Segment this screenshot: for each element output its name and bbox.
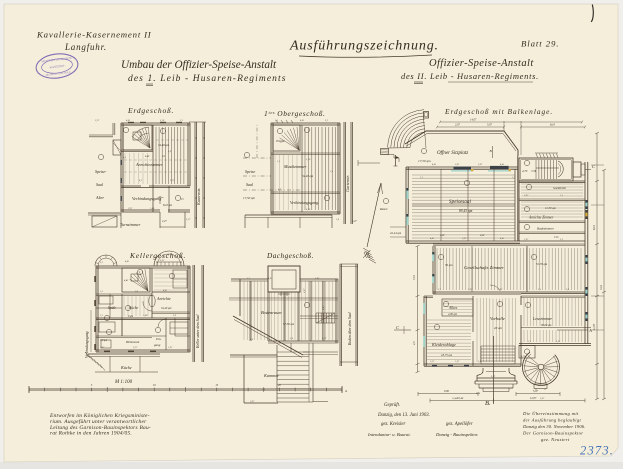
svg-text:31,0: 31,0 bbox=[600, 285, 603, 290]
svg-text:4,41: 4,41 bbox=[430, 237, 434, 240]
svg-text:Kasernstr.: Kasernstr. bbox=[196, 188, 201, 206]
svg-text:10,44: 10,44 bbox=[457, 397, 464, 400]
svg-text:7,10: 7,10 bbox=[413, 275, 416, 280]
svg-text:5,97: 5,97 bbox=[487, 124, 492, 127]
svg-text:Entworfen im Königlichen Krieg: Entworfen im Königlichen Kriegsministe- bbox=[49, 412, 150, 419]
svg-text:2,1: 2,1 bbox=[275, 119, 278, 122]
svg-text:Kavallerie-Kasernement II: Kavallerie-Kasernement II bbox=[36, 30, 152, 40]
svg-text:rium. Ausgeführt unter verant: rium. Ausgeführt unter verantwortlicher bbox=[50, 418, 147, 425]
svg-text:Danzig - Bauinspektor.: Danzig - Bauinspektor. bbox=[435, 432, 478, 437]
svg-text:4,41: 4,41 bbox=[125, 260, 129, 263]
svg-text:Kleiderablage: Kleiderablage bbox=[431, 342, 456, 347]
svg-text:Speise-: Speise- bbox=[95, 169, 107, 174]
svg-text:2,1: 2,1 bbox=[538, 288, 541, 291]
svg-text:Verbindungsgang: Verbindungsgang bbox=[132, 196, 161, 201]
svg-text:A: A bbox=[588, 328, 592, 333]
svg-text:8,10: 8,10 bbox=[550, 124, 555, 127]
svg-text:Bodenraum: Bodenraum bbox=[261, 310, 282, 315]
svg-text:Anrichtezimmer: Anrichtezimmer bbox=[135, 162, 163, 167]
svg-text:gang: gang bbox=[154, 343, 161, 347]
svg-text:Gartenstr.: Gartenstr. bbox=[345, 175, 350, 192]
svg-text:Anrichte: Anrichte bbox=[156, 296, 171, 301]
svg-text:Blatt 29.: Blatt 29. bbox=[521, 39, 559, 49]
svg-text:34,40 qm: 34,40 qm bbox=[161, 307, 171, 310]
svg-text:2,97: 2,97 bbox=[455, 124, 460, 127]
svg-text:Boden über dem Saal: Boden über dem Saal bbox=[348, 312, 352, 345]
svg-text:gez. Neustert: gez. Neustert bbox=[541, 437, 570, 442]
svg-text:Küche: Küche bbox=[128, 306, 139, 310]
svg-text:Speisesaal: Speisesaal bbox=[449, 199, 471, 205]
svg-text:Offizier-Speise-Anstalt: Offizier-Speise-Anstalt bbox=[429, 58, 534, 69]
svg-text:2,27: 2,27 bbox=[303, 288, 306, 293]
svg-text:4,41: 4,41 bbox=[500, 237, 504, 240]
svg-text:1ᵗᵉˢ Obergeschoß.: 1ᵗᵉˢ Obergeschoß. bbox=[264, 109, 325, 118]
svg-text:4,41: 4,41 bbox=[163, 289, 167, 292]
svg-text:8,10: 8,10 bbox=[593, 225, 596, 230]
svg-text:12,07: 12,07 bbox=[530, 397, 537, 400]
svg-text:der Ausführung beglaubigt: der Ausführung beglaubigt bbox=[523, 418, 582, 423]
svg-text:Gesellschafts Zimmer: Gesellschafts Zimmer bbox=[464, 265, 504, 270]
svg-text:4,41: 4,41 bbox=[126, 119, 130, 122]
svg-text:4,41: 4,41 bbox=[432, 163, 436, 166]
svg-text:2,1: 2,1 bbox=[528, 340, 531, 343]
svg-text:Danzig, den 13. Juni 1903.: Danzig, den 13. Juni 1903. bbox=[377, 413, 430, 418]
svg-text:2,1: 2,1 bbox=[180, 119, 183, 122]
svg-text:Turnzimmer: Turnzimmer bbox=[120, 222, 141, 227]
svg-text:4,41: 4,41 bbox=[440, 234, 445, 237]
svg-text:Geprüft.: Geprüft. bbox=[384, 403, 400, 408]
svg-text:Badezimmer: Badezimmer bbox=[537, 227, 555, 231]
svg-text:Verbindungsgang.: Verbindungsgang. bbox=[290, 200, 319, 205]
svg-text:9,00: 9,00 bbox=[444, 390, 449, 393]
svg-text:4,41: 4,41 bbox=[268, 277, 272, 280]
svg-text:Dachgeschoß.: Dachgeschoß. bbox=[266, 252, 314, 260]
svg-text:20 qm: 20 qm bbox=[494, 326, 503, 330]
svg-text:14,07: 14,07 bbox=[470, 119, 477, 122]
svg-text:8,10 qm: 8,10 qm bbox=[163, 204, 172, 207]
svg-text:Danzig den 30. November 1906.: Danzig den 30. November 1906. bbox=[522, 424, 585, 429]
svg-text:4,5: 4,5 bbox=[413, 341, 416, 345]
svg-text:des 1. Leib - Husaren-Regimen: des 1. Leib - Husaren-Regiments bbox=[128, 74, 287, 84]
svg-text:M 1:100: M 1:100 bbox=[114, 380, 133, 385]
svg-text:2,27: 2,27 bbox=[322, 305, 325, 310]
svg-text:Die Übereinstimmung mit: Die Übereinstimmung mit bbox=[522, 411, 579, 416]
svg-text:Erdgeschoß.: Erdgeschoß. bbox=[127, 106, 174, 115]
svg-text:Küche: Küche bbox=[120, 365, 132, 370]
svg-text:5,97: 5,97 bbox=[533, 390, 538, 393]
svg-text:gez. Apellöfer: gez. Apellöfer bbox=[446, 422, 473, 427]
svg-text:9 qm: 9 qm bbox=[128, 315, 133, 318]
svg-text:Heizraum: Heizraum bbox=[125, 340, 140, 344]
svg-text:rat Rothke in den Jahren 1904/: rat Rothke in den Jahren 1904/05. bbox=[50, 431, 132, 437]
svg-text:Speise: Speise bbox=[245, 169, 255, 174]
svg-text:C.O.: C.O. bbox=[554, 236, 559, 239]
svg-text:B.: B. bbox=[485, 400, 491, 407]
svg-text:Verbindungsgang: Verbindungsgang bbox=[85, 331, 89, 358]
svg-text:Der Garnison-Bauinspektor: Der Garnison-Bauinspektor bbox=[522, 431, 583, 436]
svg-text:39 qm: 39 qm bbox=[445, 263, 453, 267]
svg-text:Erdgeschoß mit Balkenlage.: Erdgeschoß mit Balkenlage. bbox=[444, 107, 553, 116]
svg-text:Garderobe: Garderobe bbox=[553, 186, 567, 190]
svg-text:Umbau der Offizier-Speise-Anst: Umbau der Offizier-Speise-Anstalt bbox=[121, 59, 277, 71]
svg-text:Alter: Alter bbox=[95, 195, 104, 200]
svg-text:Musikzimmer: Musikzimmer bbox=[283, 164, 307, 169]
svg-text:Vorhalle: Vorhalle bbox=[490, 316, 505, 321]
svg-text:Treppe: Treppe bbox=[276, 139, 285, 143]
svg-text:4,41: 4,41 bbox=[300, 119, 304, 122]
svg-text:2,1: 2,1 bbox=[100, 314, 103, 317]
svg-text:Intendantur- u. Baurat.: Intendantur- u. Baurat. bbox=[367, 432, 411, 437]
svg-text:10,44: 10,44 bbox=[452, 397, 458, 400]
svg-text:4,90 qm: 4,90 qm bbox=[448, 313, 457, 316]
svg-text:Langfuhr.: Langfuhr. bbox=[64, 42, 107, 52]
svg-text:Ausführungszeichnung.: Ausführungszeichnung. bbox=[289, 39, 439, 54]
svg-text:Alkov: Alkov bbox=[448, 306, 458, 310]
svg-text:2373.: 2373. bbox=[580, 444, 614, 458]
svg-text:2,1: 2,1 bbox=[247, 277, 250, 280]
svg-text:11,97: 11,97 bbox=[593, 323, 596, 330]
svg-text:30,60 qm: 30,60 qm bbox=[541, 324, 551, 327]
svg-text:Keller unter dem Saal: Keller unter dem Saal bbox=[196, 315, 200, 349]
svg-text:2,27: 2,27 bbox=[162, 220, 167, 223]
svg-text:Saal: Saal bbox=[246, 182, 254, 187]
svg-text:Saal: Saal bbox=[96, 182, 104, 187]
svg-text:Offner Sitzplatz: Offner Sitzplatz bbox=[437, 151, 468, 156]
svg-text:Rasen: Rasen bbox=[379, 207, 388, 211]
svg-text:4,41: 4,41 bbox=[124, 279, 128, 282]
svg-text:2,27: 2,27 bbox=[352, 220, 357, 223]
svg-text:Kellergeschoß.: Kellergeschoß. bbox=[129, 251, 186, 260]
svg-text:Anrichte Zimmer: Anrichte Zimmer bbox=[528, 216, 554, 220]
svg-text:des II. Leib - Husaren-Regime: des II. Leib - Husaren-Regiments. bbox=[401, 71, 539, 81]
svg-text:Ein-: Ein- bbox=[155, 337, 162, 341]
svg-text:4,70: 4,70 bbox=[521, 355, 526, 358]
svg-text:gez. Kreisler: gez. Kreisler bbox=[381, 422, 405, 427]
svg-text:Lesezimmer: Lesezimmer bbox=[532, 316, 553, 321]
svg-text:4,41: 4,41 bbox=[145, 155, 150, 158]
svg-text:4,41: 4,41 bbox=[500, 163, 504, 166]
svg-text:2,1: 2,1 bbox=[438, 288, 441, 291]
svg-text:4,41: 4,41 bbox=[480, 234, 485, 237]
